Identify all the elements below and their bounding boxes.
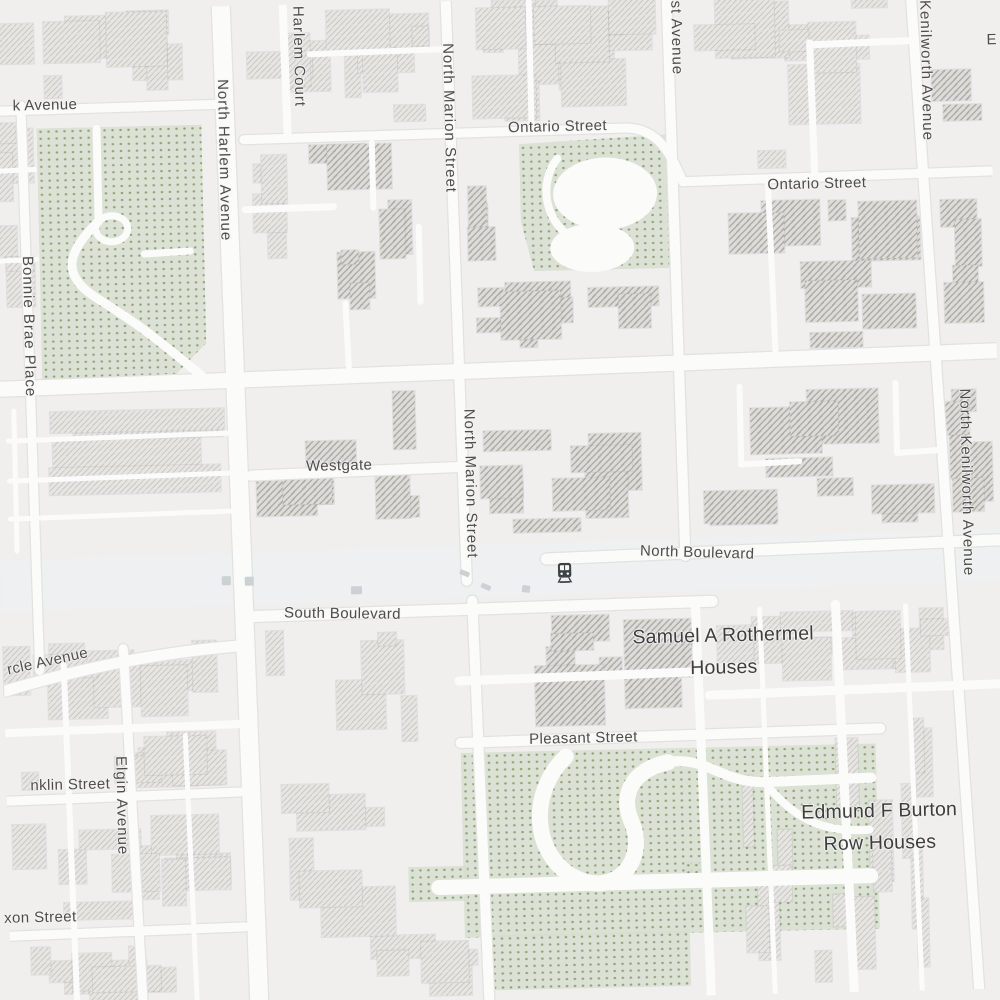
map-canvas[interactable]: k AvenueNorth Harlem AvenueHarlem CourtN… bbox=[0, 0, 1000, 1000]
street-label-pleasant-street: Pleasant Street bbox=[529, 728, 638, 747]
street-label-circle-avenue: rcle Avenue bbox=[5, 644, 89, 678]
place-label-line: Row Houses bbox=[750, 825, 1000, 862]
street-label-north-marion-street-north: North Marion Street bbox=[439, 43, 459, 193]
street-label-north-boulevard: North Boulevard bbox=[640, 542, 755, 562]
street-label-elgin-avenue: Elgin Avenue bbox=[112, 756, 131, 856]
street-label-north-kenilworth-avenue-north: h Kenilworth Avenue bbox=[916, 0, 937, 141]
street-label-dixon-street: xon Street bbox=[4, 908, 77, 927]
street-label-k-avenue: k Avenue bbox=[12, 96, 77, 114]
place-label-line: Houses bbox=[594, 649, 855, 686]
street-label-st-avenue: st Avenue bbox=[667, 0, 686, 75]
street-label-north-kenilworth-avenue-mid: North Kenilworth Avenue bbox=[956, 388, 977, 576]
street-label-south-boulevard: South Boulevard bbox=[284, 604, 401, 622]
street-label-north-harlem-avenue: North Harlem Avenue bbox=[214, 79, 235, 241]
place-label-samuel-a-rothermel-houses: Samuel A RothermelHouses bbox=[593, 617, 854, 686]
map-content: k AvenueNorth Harlem AvenueHarlem CourtN… bbox=[0, 0, 1000, 1000]
street-label-ontario-street-east: Ontario Street bbox=[767, 174, 866, 193]
street-label-e-street-cut: E bbox=[986, 31, 997, 48]
place-label-edmund-f-burton-row-houses: Edmund F BurtonRow Houses bbox=[749, 793, 1000, 862]
street-label-harlem-court: Harlem Court bbox=[289, 6, 308, 108]
map-rotated-frame: k AvenueNorth Harlem AvenueHarlem CourtN… bbox=[0, 0, 1000, 1000]
street-label-north-marion-street-mid: North Marion Street bbox=[460, 409, 480, 559]
street-label-franklin-street: nklin Street bbox=[30, 775, 110, 794]
street-label-westgate: Westgate bbox=[306, 456, 373, 474]
labels-layer: k AvenueNorth Harlem AvenueHarlem CourtN… bbox=[0, 0, 1000, 1000]
street-label-ontario-street-west: Ontario Street bbox=[508, 117, 607, 136]
street-label-bonnie-brae-place: Bonnie Brae Place bbox=[19, 256, 39, 398]
